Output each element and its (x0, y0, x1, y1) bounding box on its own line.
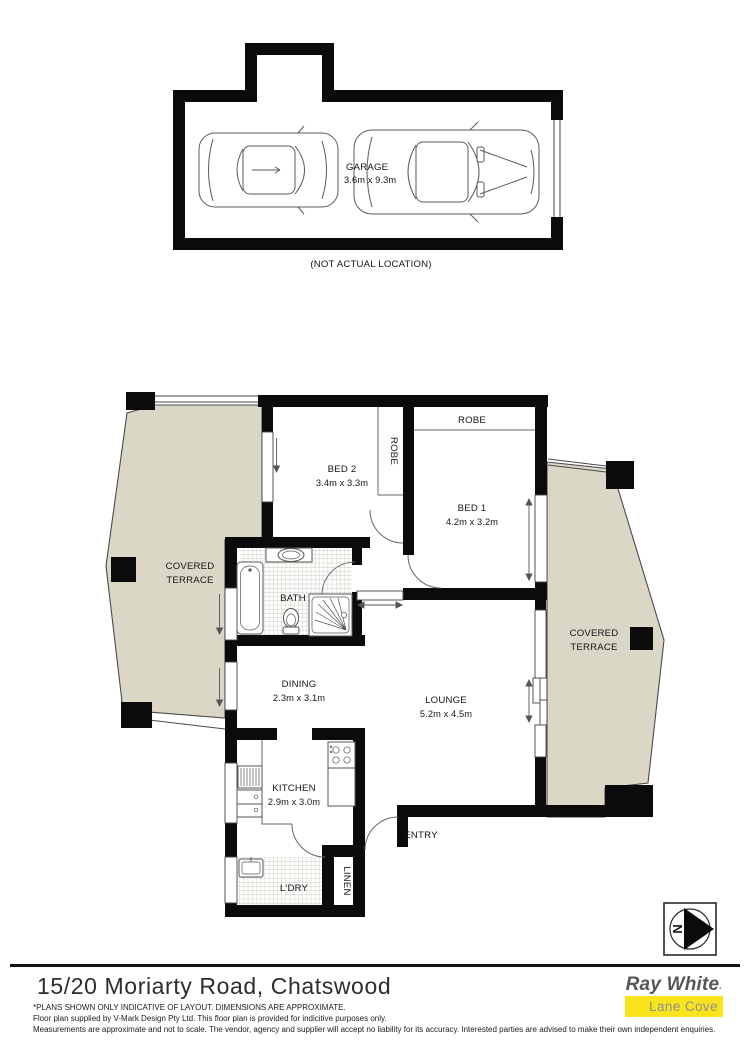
bed2-label: BED 2 (328, 464, 357, 475)
north-letter: N (670, 924, 685, 933)
terrace-right-label-1: COVERED (570, 628, 619, 639)
terrace-right-label-2: TERRACE (570, 642, 617, 653)
disclaimer-line-1: *PLANS SHOWN ONLY INDICATIVE OF LAYOUT. … (33, 1002, 715, 1013)
terrace-left-label-1: COVERED (166, 561, 215, 572)
floorplan-drawing: GARAGE 3.6m x 9.3m (NOT ACTUAL LOCATION)… (0, 0, 749, 1060)
kitchen-label: KITCHEN (272, 783, 316, 794)
property-address: 15/20 Moriarty Road, Chatswood (37, 973, 391, 1000)
garage-section: GARAGE 3.6m x 9.3m (NOT ACTUAL LOCATION) (173, 43, 563, 270)
kitchen-dims: 2.9m x 3.0m (268, 797, 320, 807)
garage-label: GARAGE (346, 162, 388, 173)
kitchen-bench (328, 768, 355, 806)
footer-divider (10, 964, 740, 967)
terrace-left-railing (155, 396, 258, 402)
kitchen: KITCHEN 2.9m x 3.0m (237, 742, 355, 817)
laundry-label: L'DRY (280, 883, 309, 894)
north-compass-icon: N (664, 903, 716, 955)
terrace-left-label-2: TERRACE (166, 575, 213, 586)
bath-label: BATH (280, 593, 306, 604)
linen-label: LINEN (341, 866, 352, 895)
disclaimer-block: *PLANS SHOWN ONLY INDICATIVE OF LAYOUT. … (33, 1002, 715, 1035)
raywhite-logo-mark: . (719, 981, 722, 991)
car-icon-left (199, 126, 338, 214)
garage-note: (NOT ACTUAL LOCATION) (310, 259, 431, 270)
raywhite-logo: Ray White. (570, 974, 722, 996)
bathroom: BATH (237, 548, 352, 636)
bed1-dims: 4.2m x 3.2m (446, 517, 498, 527)
covered-terrace-left: COVERED TERRACE (106, 392, 262, 729)
lounge-label: LOUNGE (425, 695, 467, 706)
bed1-robe-label: ROBE (458, 415, 486, 426)
windows (225, 432, 547, 903)
office-name-badge: Lane Cove (625, 996, 723, 1017)
laundry: L'DRY LINEN (237, 857, 352, 905)
disclaimer-line-3: Measurements are approximate and not to … (33, 1024, 715, 1035)
garage-door-line (554, 120, 560, 217)
bed2-robe-label: ROBE (388, 437, 399, 465)
bed2-dims: 3.4m x 3.3m (316, 478, 368, 488)
garage-walls (173, 43, 563, 250)
lounge-dims: 5.2m x 4.5m (420, 709, 472, 719)
stove-icon (328, 742, 355, 768)
floorplan-page: GARAGE 3.6m x 9.3m (NOT ACTUAL LOCATION)… (0, 0, 749, 1060)
kitchen-sink-2 (237, 804, 262, 817)
entry-label: ENTRY (404, 830, 438, 841)
kitchen-sink-1 (237, 790, 262, 804)
dining-label: DINING (282, 679, 317, 690)
covered-terrace-right: COVERED TERRACE (547, 459, 664, 817)
garage-dims: 3.6m x 9.3m (344, 175, 396, 185)
dining-dims: 2.3m x 3.1m (273, 693, 325, 703)
bed1-label: BED 1 (458, 503, 487, 514)
disclaimer-line-2: Floor plan supplied by V-Mark Design Pty… (33, 1013, 715, 1024)
